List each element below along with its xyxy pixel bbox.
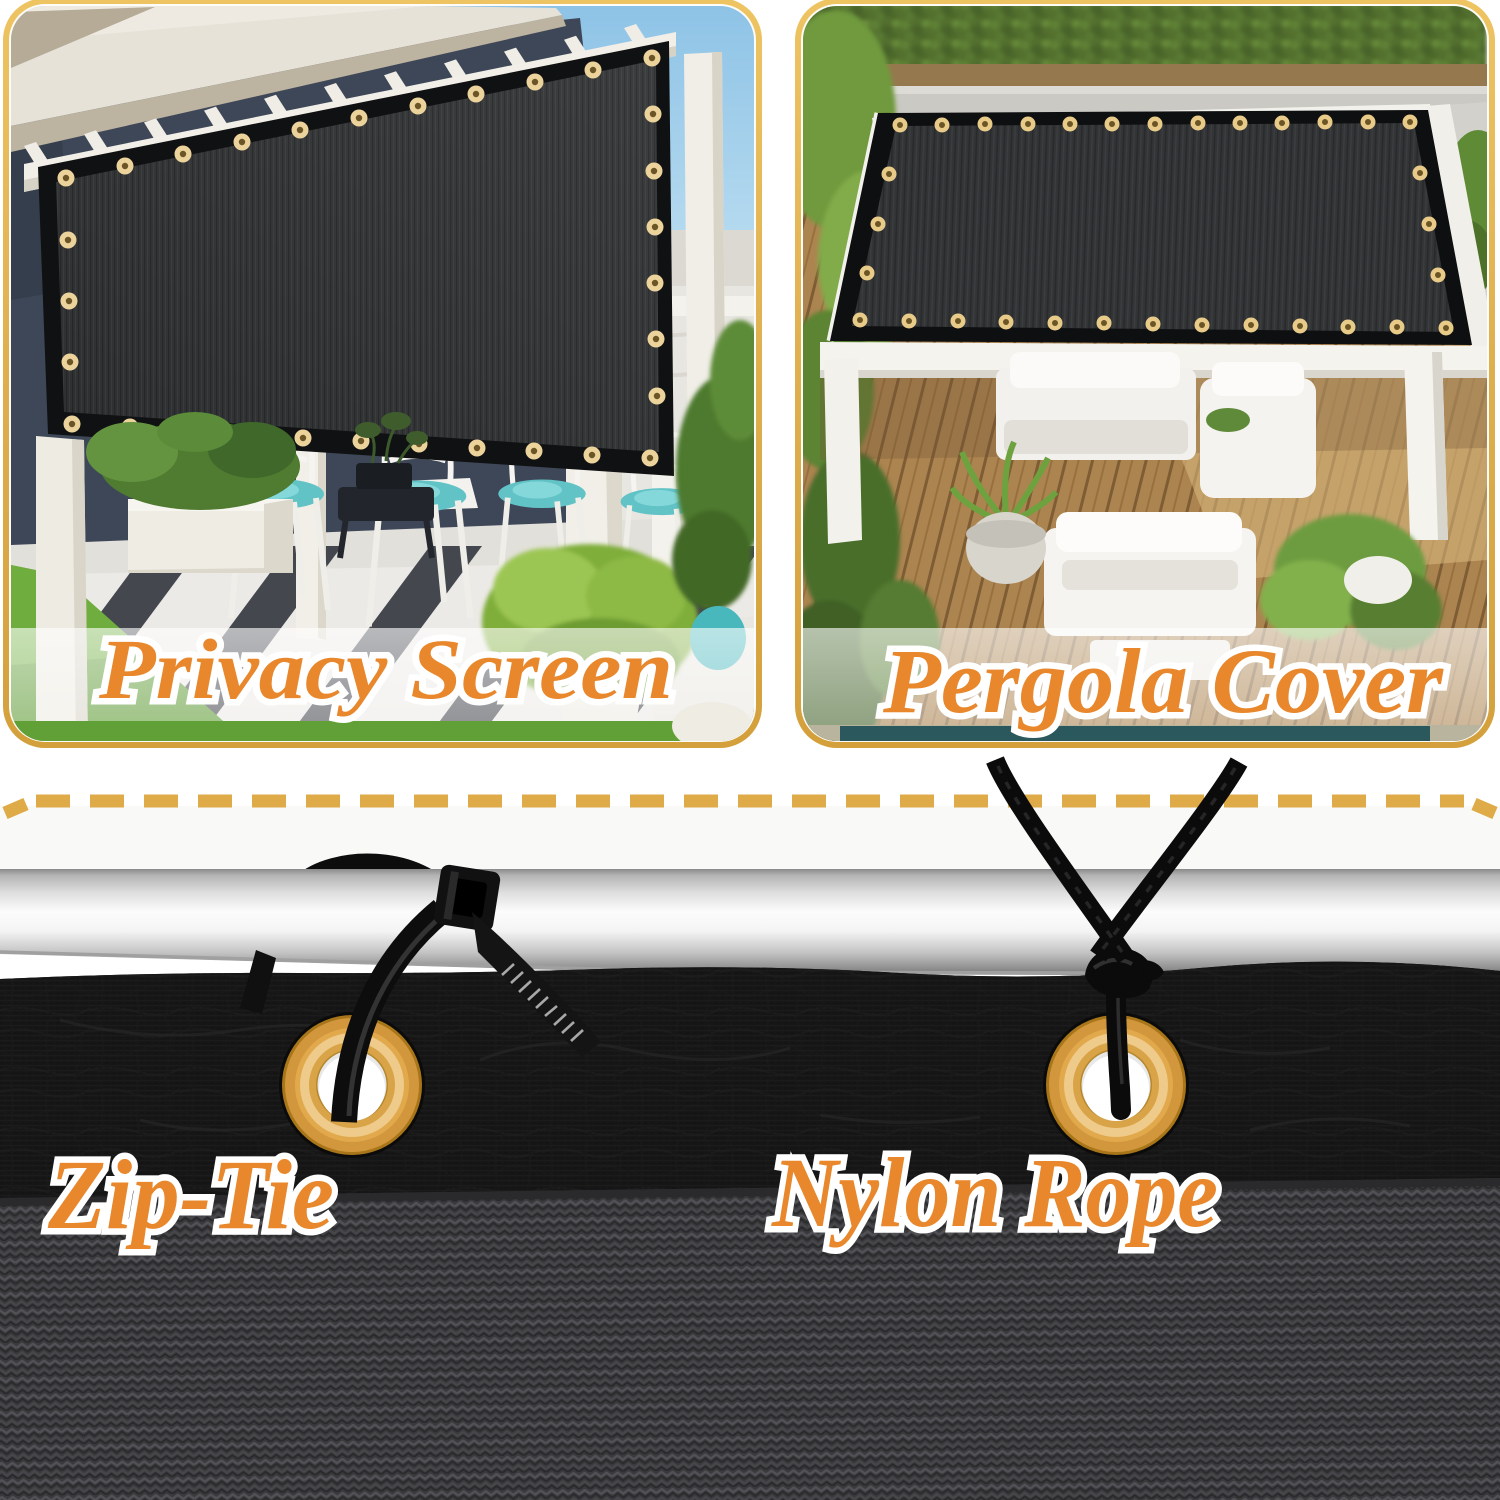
svg-text:Nylon Rope: Nylon Rope (771, 1137, 1218, 1248)
svg-text:Zip-Tie: Zip-Tie (47, 1139, 334, 1250)
svg-text:Privacy Screen: Privacy Screen (98, 621, 673, 717)
svg-text:Pergola Cover: Pergola Cover (882, 630, 1444, 732)
